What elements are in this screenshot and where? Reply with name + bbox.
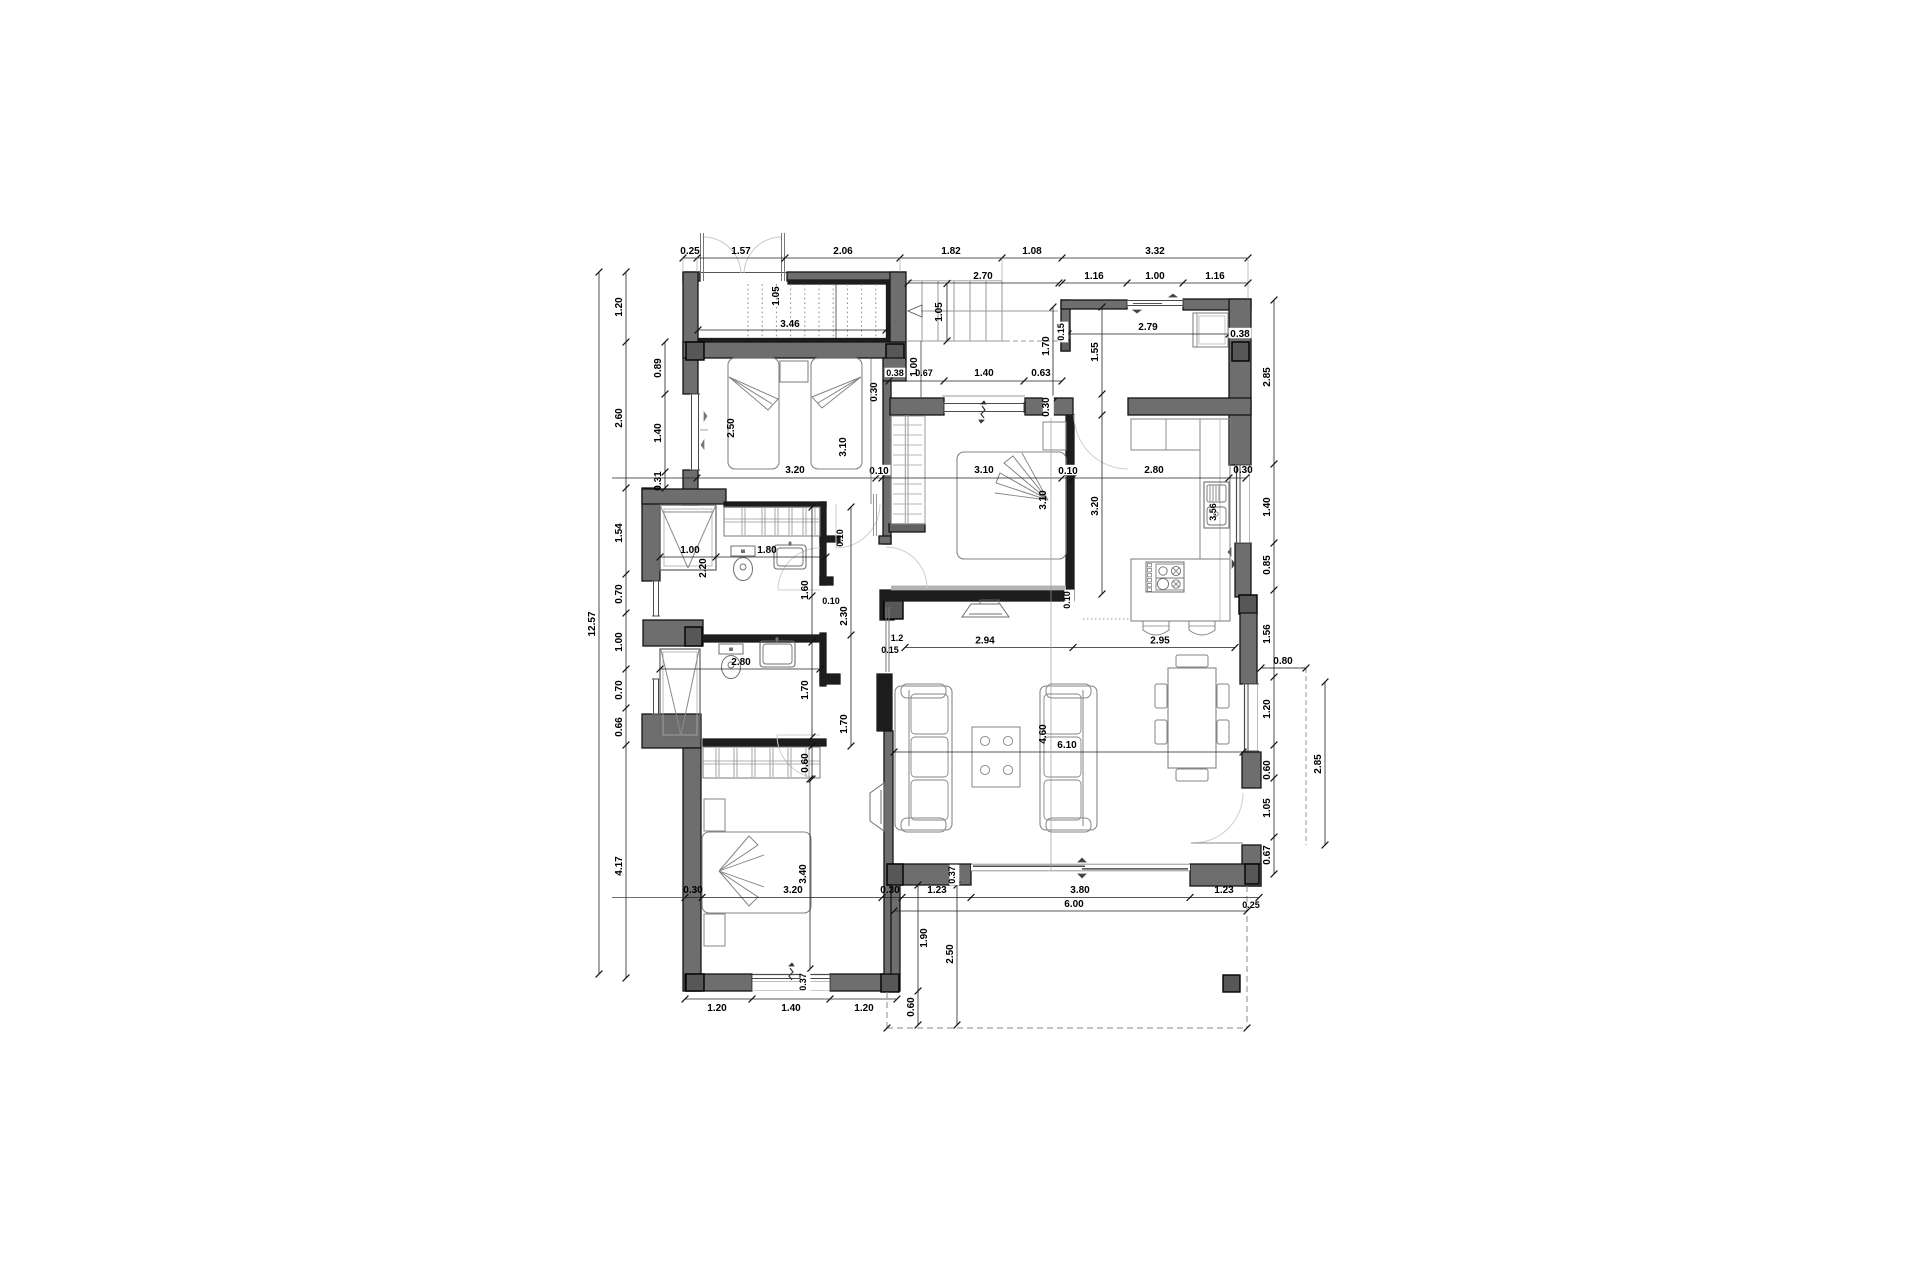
- svg-text:0.15: 0.15: [1056, 323, 1066, 341]
- svg-text:1.56: 1.56: [1262, 624, 1273, 644]
- svg-text:3.10: 3.10: [1038, 490, 1049, 510]
- svg-text:1.40: 1.40: [1262, 497, 1273, 517]
- svg-text:1.2: 1.2: [891, 633, 904, 643]
- svg-text:1.90: 1.90: [919, 928, 930, 948]
- svg-text:1.23: 1.23: [927, 885, 947, 896]
- svg-text:0.67: 0.67: [1262, 845, 1273, 865]
- svg-text:3.56: 3.56: [1208, 503, 1218, 521]
- svg-text:2.80: 2.80: [731, 657, 751, 668]
- svg-text:1.00: 1.00: [1145, 271, 1165, 282]
- svg-text:1.00: 1.00: [909, 357, 920, 377]
- svg-text:1.70: 1.70: [1041, 336, 1052, 356]
- svg-text:1.82: 1.82: [941, 246, 961, 257]
- svg-text:1.60: 1.60: [800, 580, 811, 600]
- svg-text:1.55: 1.55: [1090, 342, 1101, 362]
- svg-text:0.10: 0.10: [1058, 466, 1078, 477]
- svg-text:1.05: 1.05: [934, 302, 945, 322]
- svg-text:3.10: 3.10: [974, 465, 994, 476]
- svg-text:3.32: 3.32: [1145, 246, 1165, 257]
- svg-text:0.25: 0.25: [680, 246, 700, 257]
- svg-text:1.70: 1.70: [800, 680, 811, 700]
- svg-text:1.23: 1.23: [1214, 885, 1234, 896]
- svg-text:3.20: 3.20: [785, 465, 805, 476]
- svg-text:1.80: 1.80: [757, 545, 777, 556]
- svg-text:1.00: 1.00: [680, 545, 700, 556]
- svg-text:0.30: 0.30: [683, 885, 703, 896]
- svg-text:0.30: 0.30: [1233, 465, 1253, 476]
- svg-text:2.50: 2.50: [726, 418, 737, 438]
- svg-text:1.57: 1.57: [731, 246, 751, 257]
- svg-text:0.80: 0.80: [1273, 656, 1293, 667]
- svg-text:0.70: 0.70: [614, 680, 625, 700]
- svg-text:0.10: 0.10: [822, 596, 840, 606]
- svg-text:2.85: 2.85: [1262, 367, 1273, 387]
- svg-text:0.66: 0.66: [614, 717, 625, 737]
- svg-text:0.38: 0.38: [886, 368, 904, 378]
- svg-text:4.60: 4.60: [1038, 724, 1049, 744]
- svg-text:2.70: 2.70: [973, 271, 993, 282]
- svg-text:6.00: 6.00: [1064, 899, 1084, 910]
- svg-text:3.40: 3.40: [798, 864, 809, 884]
- svg-text:12.57: 12.57: [587, 611, 598, 636]
- svg-text:0.89: 0.89: [653, 358, 664, 378]
- svg-text:0.85: 0.85: [1262, 555, 1273, 575]
- svg-text:2.60: 2.60: [614, 408, 625, 428]
- svg-text:2.94: 2.94: [975, 636, 995, 647]
- svg-text:1.40: 1.40: [974, 368, 994, 379]
- svg-text:0.30: 0.30: [880, 885, 900, 896]
- svg-text:1.20: 1.20: [614, 297, 625, 317]
- svg-text:3.10: 3.10: [838, 437, 849, 457]
- svg-text:1.20: 1.20: [1262, 699, 1273, 719]
- svg-text:1.40: 1.40: [653, 423, 664, 443]
- svg-text:1.16: 1.16: [1205, 271, 1225, 282]
- svg-text:1.20: 1.20: [854, 1003, 874, 1014]
- svg-text:6.10: 6.10: [1057, 740, 1077, 751]
- svg-text:1.00: 1.00: [614, 632, 625, 652]
- svg-text:1.20: 1.20: [707, 1003, 727, 1014]
- svg-text:0.38: 0.38: [1230, 329, 1250, 340]
- svg-text:4.17: 4.17: [614, 856, 625, 876]
- svg-text:3.20: 3.20: [783, 885, 803, 896]
- svg-text:0.25: 0.25: [1242, 900, 1260, 910]
- svg-text:0.37: 0.37: [798, 973, 808, 991]
- svg-text:0.10: 0.10: [835, 529, 845, 547]
- svg-text:0.70: 0.70: [614, 584, 625, 604]
- svg-text:2.06: 2.06: [833, 246, 853, 257]
- svg-text:0.37: 0.37: [947, 866, 957, 884]
- svg-text:0.10: 0.10: [869, 466, 889, 477]
- svg-text:2.50: 2.50: [945, 944, 956, 964]
- svg-text:3.20: 3.20: [1090, 496, 1101, 516]
- svg-text:0.31: 0.31: [653, 471, 664, 491]
- svg-text:2.85: 2.85: [1313, 754, 1324, 774]
- svg-text:1.05: 1.05: [1262, 798, 1273, 818]
- svg-text:0.60: 0.60: [906, 997, 917, 1017]
- svg-text:3.80: 3.80: [1070, 885, 1090, 896]
- svg-text:1.08: 1.08: [1022, 246, 1042, 257]
- svg-text:1.05: 1.05: [771, 286, 782, 306]
- svg-text:3.46: 3.46: [780, 319, 800, 330]
- svg-text:2.95: 2.95: [1150, 636, 1170, 647]
- svg-text:0.60: 0.60: [1262, 760, 1273, 780]
- svg-text:2.20: 2.20: [698, 558, 709, 578]
- svg-text:1.40: 1.40: [781, 1003, 801, 1014]
- svg-text:0.60: 0.60: [800, 753, 811, 773]
- svg-text:1.70: 1.70: [839, 714, 850, 734]
- svg-text:2.79: 2.79: [1138, 322, 1158, 333]
- svg-text:0.63: 0.63: [1031, 368, 1051, 379]
- svg-text:0.15: 0.15: [881, 645, 899, 655]
- svg-text:2.30: 2.30: [839, 606, 850, 626]
- svg-text:2.80: 2.80: [1144, 465, 1164, 476]
- svg-text:0.10: 0.10: [1062, 591, 1072, 609]
- svg-text:1.54: 1.54: [614, 523, 625, 543]
- svg-text:0.30: 0.30: [1041, 397, 1052, 417]
- svg-text:1.16: 1.16: [1084, 271, 1104, 282]
